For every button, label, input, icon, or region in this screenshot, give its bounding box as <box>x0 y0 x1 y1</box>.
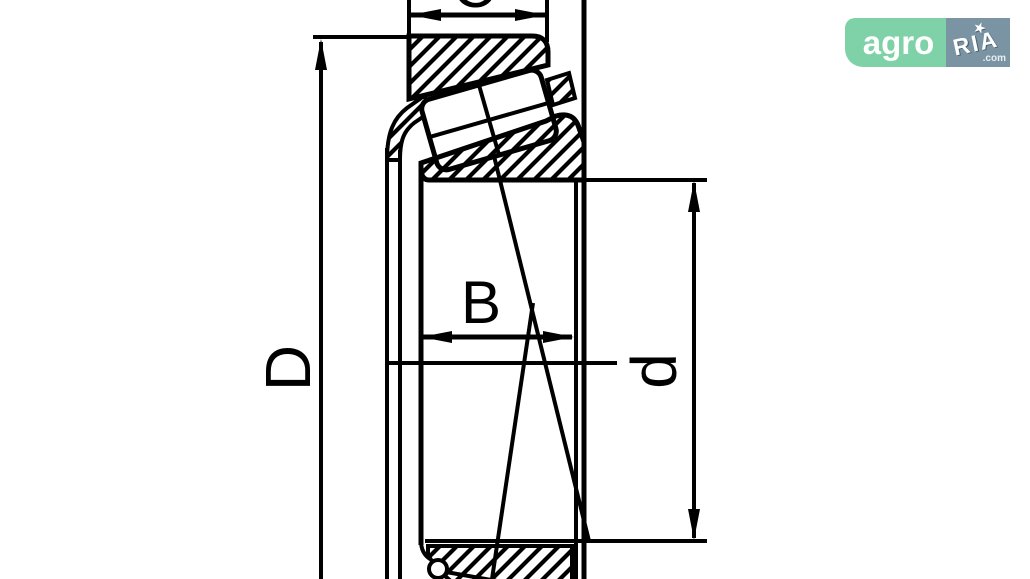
bearing-schematic: D C d B <box>0 0 1030 579</box>
agro-ria-logo[interactable]: agro ★ RIA .com <box>845 18 1010 67</box>
label-D: D <box>252 345 324 391</box>
inner-ring-bottom-section <box>421 541 572 579</box>
dimension-d: d <box>425 180 707 541</box>
label-C: C <box>452 0 495 20</box>
logo-green-block[interactable]: agro <box>845 18 946 67</box>
label-B: B <box>461 269 501 336</box>
logo-gray-block[interactable]: ★ RIA .com <box>946 18 1010 67</box>
logo-agro-text: agro <box>857 26 935 59</box>
logo-com-text: .com <box>983 53 1006 64</box>
dimension-B: B <box>421 269 574 343</box>
bearing-drawing-page: D C d B <box>0 0 1030 579</box>
bottom-roller-end <box>429 560 447 578</box>
label-d: d <box>618 353 690 389</box>
cone-line-b <box>492 303 533 579</box>
cage-right-piece <box>547 73 575 105</box>
